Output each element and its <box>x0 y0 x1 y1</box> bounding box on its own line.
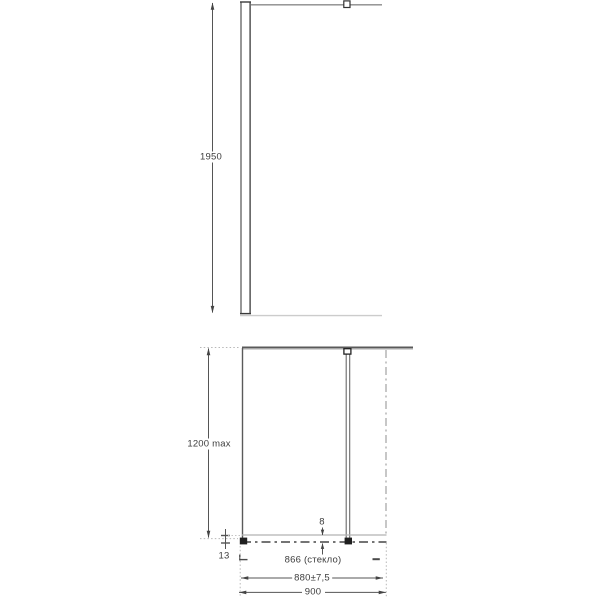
dim-label-glass-thickness: 8 <box>317 517 326 528</box>
dim-label-total-width: 900 <box>303 587 323 598</box>
support-bar-glass-clamp <box>345 538 352 545</box>
dim-label-height: 1950 <box>198 152 224 163</box>
dim-label-depth-max: 1200 max <box>185 439 232 450</box>
arrow-down-icon <box>321 530 324 536</box>
arrow-left-icon <box>241 576 248 580</box>
arrow-down-icon <box>207 531 211 538</box>
arrow-up-icon <box>211 3 215 10</box>
wall-profile-plan <box>240 538 247 545</box>
dim-label-glass-width: 866 (стекло) <box>283 555 344 566</box>
arrow-down-icon <box>211 306 215 313</box>
arrow-up-icon <box>321 543 324 549</box>
front-view <box>211 1 382 316</box>
wall-profile-front <box>240 2 251 314</box>
support-bar-wall-bracket <box>344 349 351 354</box>
dim-label-wall-offset: 13 <box>217 551 232 562</box>
technical-drawing-page: 1950 1200 max 13 8 866 (стекло) 880±7,5 … <box>0 0 600 600</box>
drawing-linework <box>0 0 600 600</box>
arrow-right-icon <box>376 576 383 580</box>
support-bar-clamp-front <box>344 1 350 8</box>
dim-label-adjustment: 880±7,5 <box>292 573 332 584</box>
support-bar-plan <box>346 354 350 538</box>
arrow-up-icon <box>207 348 211 355</box>
arrow-right-icon <box>379 591 386 595</box>
